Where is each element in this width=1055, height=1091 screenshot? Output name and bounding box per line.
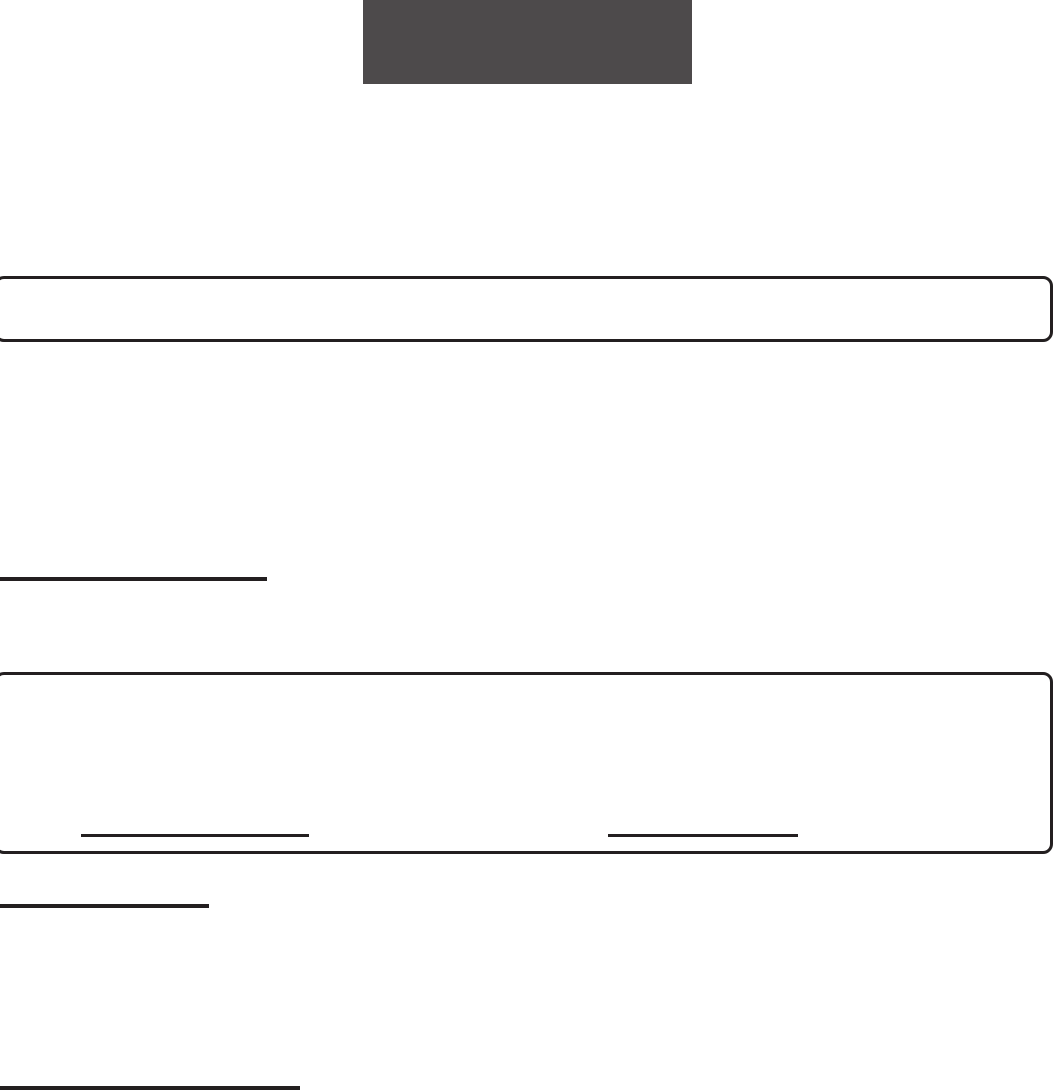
logo-placeholder-block	[363, 0, 692, 84]
document-page	[0, 0, 1055, 1091]
blank-fill-in-line-5	[0, 1086, 300, 1090]
blank-fill-in-line-2-inside-box	[81, 834, 309, 837]
blank-fill-in-line-3-inside-box	[608, 834, 798, 837]
blank-fill-in-line-1	[0, 577, 267, 581]
outlined-field-box-middle	[0, 672, 1053, 854]
outlined-field-box-top	[0, 276, 1053, 342]
blank-fill-in-line-4	[0, 904, 209, 908]
